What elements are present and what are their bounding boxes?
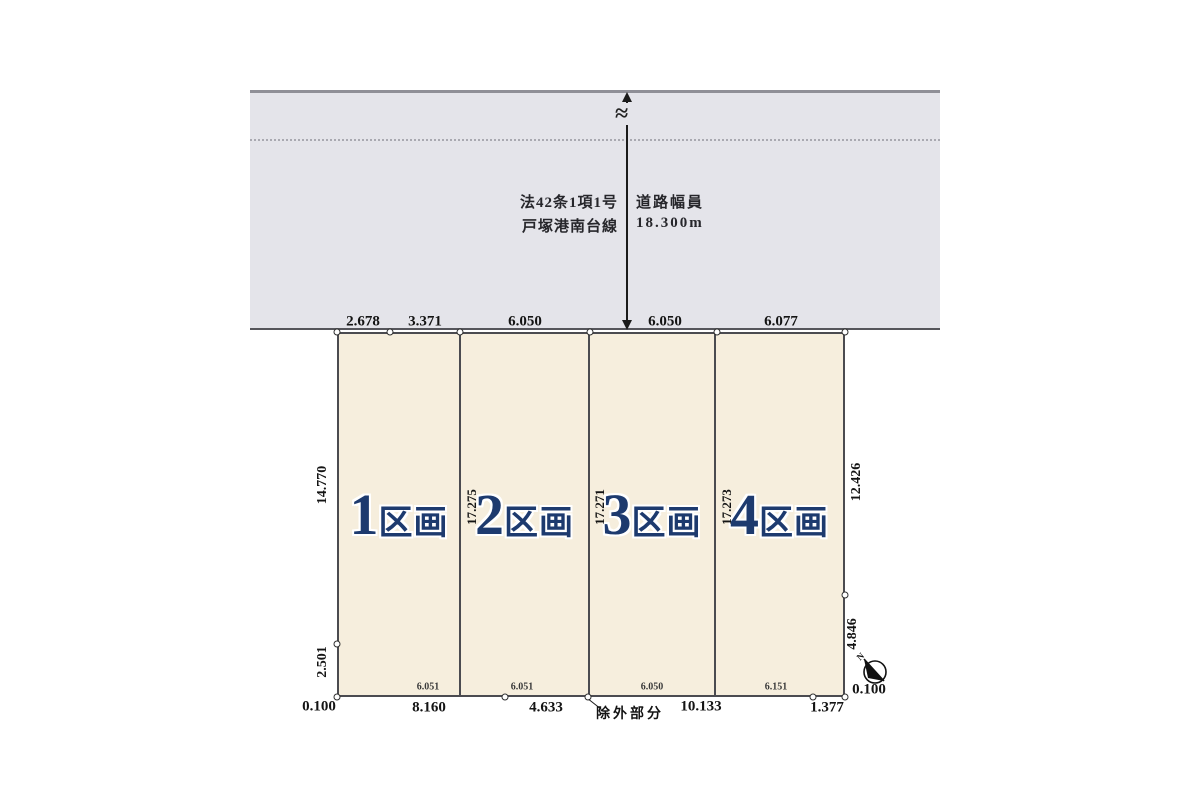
plot-2-label: 2 区画 (475, 486, 574, 544)
boundary-marker (842, 592, 849, 599)
dim-depth-1: 17.275 (464, 489, 480, 525)
dim-depth-2: 17.271 (592, 489, 608, 525)
site-plan-diagram: ≈ 法42条1項1号 道路幅員 戸塚港南台線 18.300m 1 区画 2 区画… (0, 0, 1200, 800)
break-symbol-icon: ≈ (612, 103, 631, 125)
boundary-marker (714, 329, 721, 336)
boundary-marker (387, 329, 394, 336)
plot-3-label: 3 区画 (603, 486, 702, 544)
boundary-marker (587, 329, 594, 336)
plot-3: 3 区画 (590, 334, 716, 695)
dim-frontage-4: 6.151 (765, 682, 788, 693)
road-annotation: 法42条1項1号 道路幅員 戸塚港南台線 18.300m (437, 191, 817, 236)
dim-left-upper: 14.770 (315, 466, 331, 505)
plot-4: 4 区画 (716, 334, 843, 695)
dim-bottom-3: 4.633 (529, 700, 563, 717)
dim-frontage-3: 6.050 (641, 682, 664, 693)
boundary-marker (457, 329, 464, 336)
excluded-portion-label: 除外部分 (596, 703, 664, 723)
road-width-value: 18.300m (636, 215, 817, 236)
north-compass-icon: N (853, 648, 893, 688)
plot-2: 2 区画 (461, 334, 590, 695)
road-regulation-label: 法42条1項1号 (437, 191, 618, 212)
dim-bottom-2: 8.160 (412, 700, 446, 717)
plot-2-suffix: 区画 (504, 507, 574, 541)
dim-bottom-1: 0.100 (302, 699, 336, 716)
plots-container: 1 区画 2 区画 3 区画 4 区画 (337, 332, 845, 697)
dim-depth-3: 17.273 (719, 489, 735, 525)
plot-3-suffix: 区画 (632, 507, 702, 541)
plot-1-suffix: 区画 (379, 507, 449, 541)
dim-bottom-5: 1.377 (810, 700, 844, 717)
plot-1: 1 区画 (339, 334, 461, 695)
dim-left-lower: 2.501 (315, 646, 331, 678)
dim-top-5: 6.077 (764, 314, 798, 331)
arrow-down-icon (622, 320, 632, 330)
dim-frontage-2: 6.051 (511, 682, 534, 693)
dim-right-upper: 12.426 (849, 463, 865, 502)
dim-bottom-4: 10.133 (680, 699, 721, 716)
dim-top-3: 6.050 (508, 314, 542, 331)
dim-frontage-1: 6.051 (417, 682, 440, 693)
road-width-label: 道路幅員 (636, 191, 817, 212)
dim-top-2: 3.371 (408, 314, 442, 331)
plot-4-suffix: 区画 (759, 507, 829, 541)
dim-right-lower: 4.846 (845, 618, 861, 650)
boundary-marker (502, 694, 509, 701)
plot-4-label: 4 区画 (730, 486, 829, 544)
road-name-label: 戸塚港南台線 (437, 215, 618, 236)
plot-1-label: 1 区画 (350, 486, 449, 544)
road-centerline (250, 139, 940, 141)
dim-top-4: 6.050 (648, 314, 682, 331)
boundary-marker (842, 329, 849, 336)
dim-top-1: 2.678 (346, 314, 380, 331)
boundary-marker (334, 641, 341, 648)
plot-1-number: 1 (350, 486, 379, 544)
boundary-marker (334, 329, 341, 336)
